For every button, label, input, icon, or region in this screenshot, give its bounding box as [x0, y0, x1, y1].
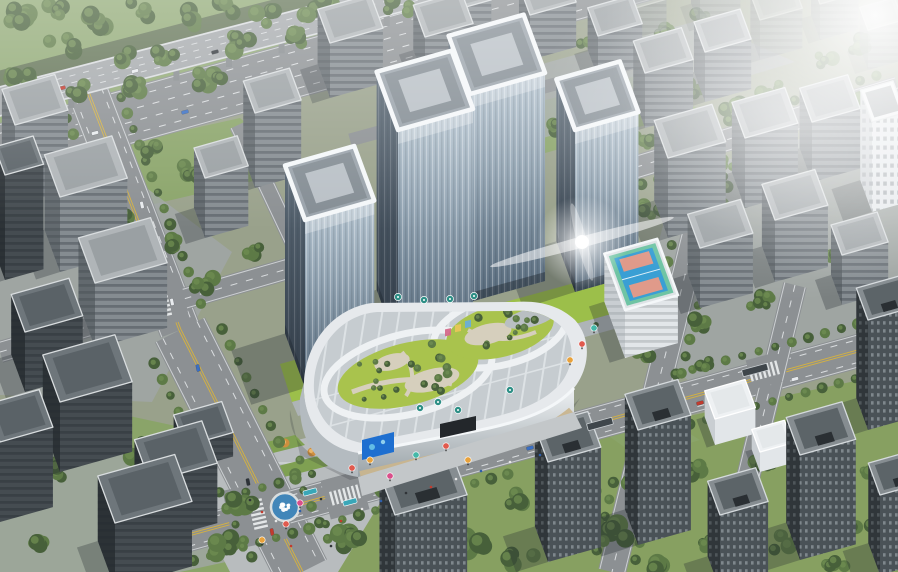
scene-svg [0, 0, 898, 572]
aerial-render-canvas [0, 0, 898, 572]
city-block-building [0, 390, 53, 530]
